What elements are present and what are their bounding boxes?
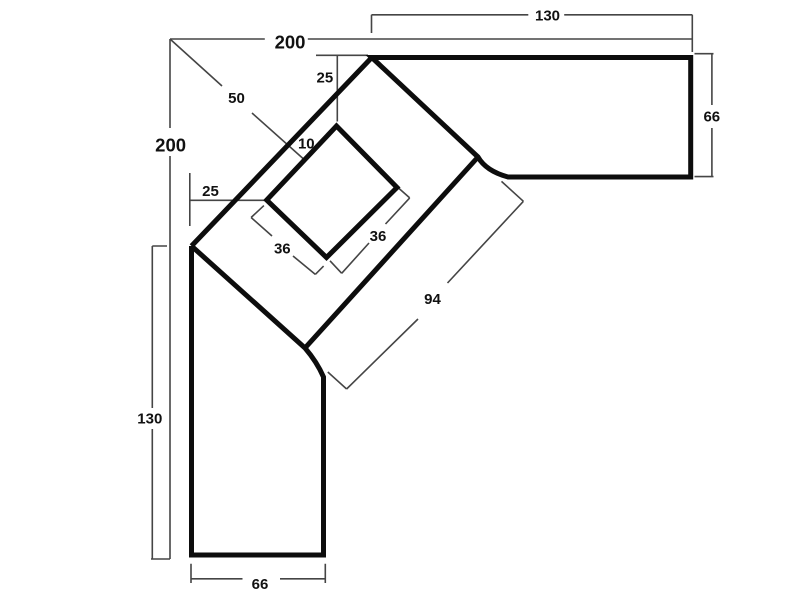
svg-text:25: 25 [317,69,334,86]
svg-text:200: 200 [155,134,186,155]
svg-text:25: 25 [202,183,219,200]
svg-text:200: 200 [275,32,306,53]
svg-text:66: 66 [252,576,269,593]
svg-text:50: 50 [228,90,245,107]
svg-text:36: 36 [370,228,387,245]
svg-text:36: 36 [274,240,291,257]
svg-text:130: 130 [535,7,560,24]
svg-text:10: 10 [298,136,315,153]
svg-text:130: 130 [137,411,162,428]
svg-text:94: 94 [424,291,441,308]
svg-text:66: 66 [703,108,720,125]
